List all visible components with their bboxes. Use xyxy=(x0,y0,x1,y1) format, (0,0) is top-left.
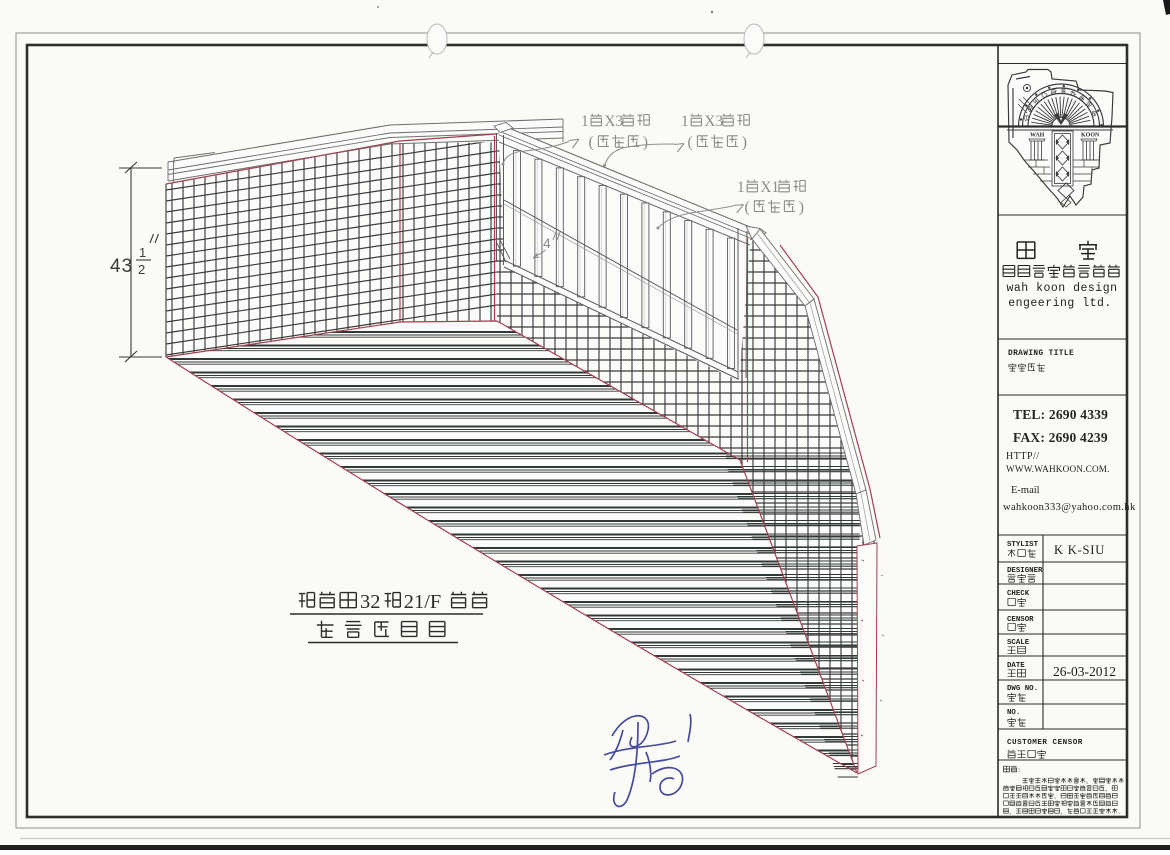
svg-text:21/F: 21/F xyxy=(404,591,441,613)
svg-text:X1: X1 xyxy=(760,179,779,196)
svg-text:X3: X3 xyxy=(704,113,723,130)
svg-text:WAH: WAH xyxy=(1030,133,1045,139)
svg-text:engeering ltd.: engeering ltd. xyxy=(1008,297,1112,310)
svg-text:CHECK: CHECK xyxy=(1007,590,1030,598)
svg-text:1: 1 xyxy=(581,113,589,130)
svg-text:DATE: DATE xyxy=(1007,662,1025,670)
svg-text:K K-SIU: K K-SIU xyxy=(1054,543,1105,557)
svg-text:32: 32 xyxy=(360,591,380,613)
svg-text:(: ( xyxy=(745,199,750,216)
svg-text:): ) xyxy=(643,134,648,151)
svg-text:CUSTOMER CENSOR: CUSTOMER CENSOR xyxy=(1007,739,1083,747)
svg-text:26-03-2012: 26-03-2012 xyxy=(1053,664,1116,679)
svg-text:wah koon design: wah koon design xyxy=(1006,282,1117,295)
svg-text:): ) xyxy=(742,134,747,151)
svg-text:43: 43 xyxy=(110,256,133,277)
svg-text:SCALE: SCALE xyxy=(1007,639,1030,647)
svg-text:1: 1 xyxy=(681,113,689,130)
svg-text:4: 4 xyxy=(543,235,551,251)
svg-text:TEL: 2690 4339: TEL: 2690 4339 xyxy=(1013,407,1108,422)
svg-text:NO.: NO. xyxy=(1007,709,1020,717)
svg-text:CENSOR: CENSOR xyxy=(1007,616,1034,624)
svg-text:E-mail: E-mail xyxy=(1011,485,1040,496)
svg-text:wahkoon333@yahoo.com.hk: wahkoon333@yahoo.com.hk xyxy=(1003,502,1136,513)
svg-text:FAX: 2690 4239: FAX: 2690 4239 xyxy=(1013,430,1108,445)
svg-text:STYLIST: STYLIST xyxy=(1007,541,1039,549)
svg-text:(: ( xyxy=(688,134,693,151)
svg-text:DWG NO.: DWG NO. xyxy=(1007,685,1038,693)
svg-text:HTTP//: HTTP// xyxy=(1006,451,1040,462)
svg-text:1: 1 xyxy=(139,245,146,260)
svg-text:(: ( xyxy=(589,134,594,151)
svg-text:2: 2 xyxy=(138,262,145,277)
svg-text:X3: X3 xyxy=(604,113,623,130)
svg-text:1: 1 xyxy=(737,179,745,196)
svg-text:WWW.WAHKOON.COM.: WWW.WAHKOON.COM. xyxy=(1006,464,1110,474)
svg-text:): ) xyxy=(799,199,804,216)
svg-text:DRAWING TITLE: DRAWING TITLE xyxy=(1008,350,1074,358)
svg-text:KOON: KOON xyxy=(1081,133,1100,139)
svg-text:DESIGNER: DESIGNER xyxy=(1007,567,1043,575)
svg-text::: : xyxy=(1018,765,1020,774)
